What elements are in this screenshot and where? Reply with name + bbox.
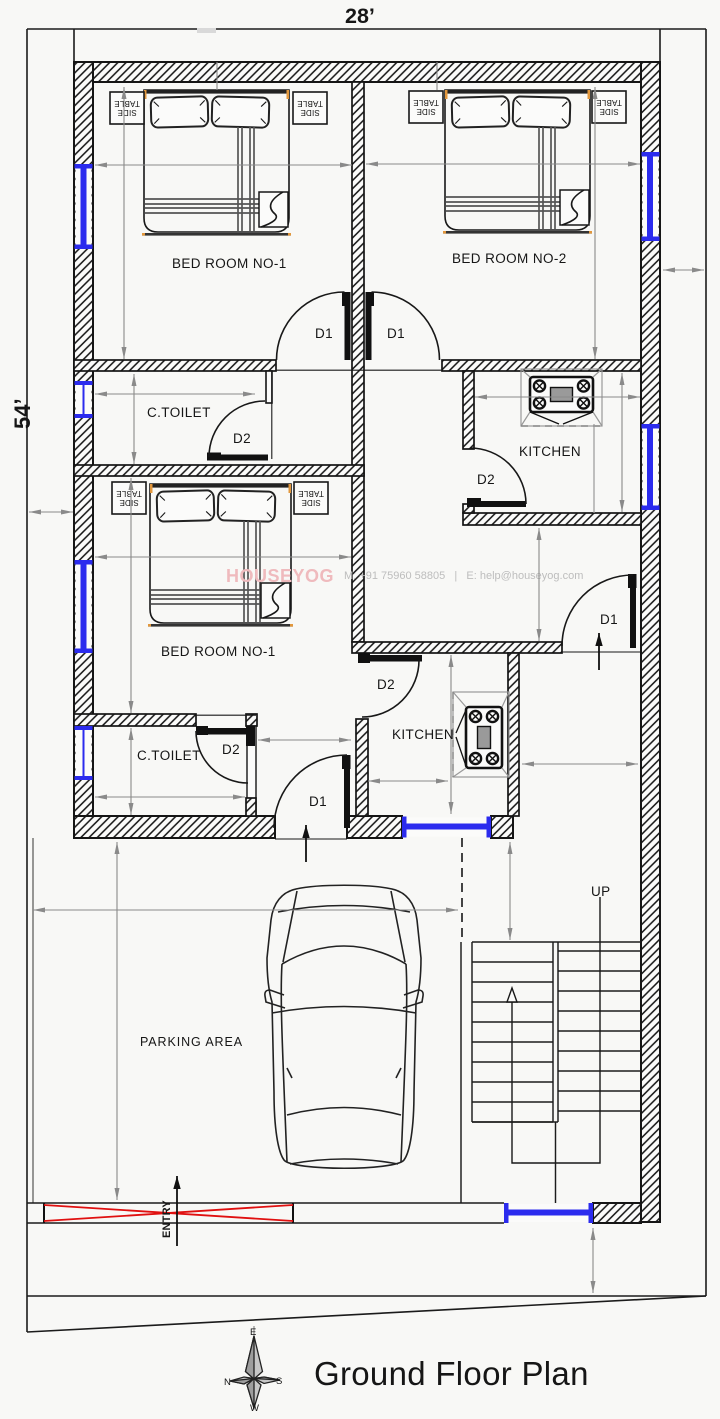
svg-text:ENTRY: ENTRY — [161, 1200, 173, 1238]
svg-text:M: +91 75960 58805 | E: he: M: +91 75960 58805 | E: help@houseyog.co… — [344, 570, 583, 582]
svg-text:D1: D1 — [387, 326, 405, 341]
svg-text:D1: D1 — [315, 326, 333, 341]
svg-text:BED ROOM NO-2: BED ROOM NO-2 — [452, 251, 567, 266]
svg-text:D1: D1 — [309, 794, 327, 809]
svg-text:28’: 28’ — [345, 4, 375, 28]
svg-text:54’: 54’ — [10, 398, 35, 429]
svg-text:C.TOILET: C.TOILET — [147, 405, 211, 420]
svg-text:C.TOILET: C.TOILET — [137, 748, 201, 763]
svg-text:TABLE: TABLE — [596, 98, 622, 107]
svg-text:BED ROOM NO-1: BED ROOM NO-1 — [161, 644, 276, 659]
svg-text:SIDE: SIDE — [301, 498, 320, 507]
svg-text:TABLE: TABLE — [297, 99, 323, 108]
svg-text:S: S — [276, 1376, 282, 1387]
svg-text:KITCHEN: KITCHEN — [519, 444, 581, 459]
svg-text:UP: UP — [591, 884, 611, 899]
svg-text:BED ROOM NO-1: BED ROOM NO-1 — [172, 256, 287, 271]
svg-text:D1: D1 — [600, 612, 618, 627]
svg-text:HOUSEYOG: HOUSEYOG — [226, 566, 334, 586]
svg-text:D2: D2 — [377, 677, 395, 692]
svg-text:Ground Floor Plan: Ground Floor Plan — [314, 1355, 589, 1392]
svg-text:SIDE: SIDE — [119, 498, 138, 507]
svg-text:TABLE: TABLE — [298, 489, 324, 498]
svg-text:SIDE: SIDE — [300, 108, 319, 117]
svg-text:D2: D2 — [477, 472, 495, 487]
svg-text:TABLE: TABLE — [413, 98, 439, 107]
svg-text:W: W — [250, 1403, 259, 1414]
svg-text:D2: D2 — [233, 431, 251, 446]
svg-text:N: N — [224, 1377, 231, 1388]
svg-text:SIDE: SIDE — [117, 108, 136, 117]
svg-text:D2: D2 — [222, 742, 240, 757]
svg-text:E: E — [250, 1327, 256, 1338]
svg-text:TABLE: TABLE — [116, 489, 142, 498]
svg-text:TABLE: TABLE — [114, 99, 140, 108]
svg-text:KITCHEN: KITCHEN — [392, 727, 454, 742]
svg-text:PARKING AREA: PARKING AREA — [140, 1035, 243, 1049]
svg-text:SIDE: SIDE — [416, 107, 435, 116]
svg-text:SIDE: SIDE — [599, 107, 618, 116]
